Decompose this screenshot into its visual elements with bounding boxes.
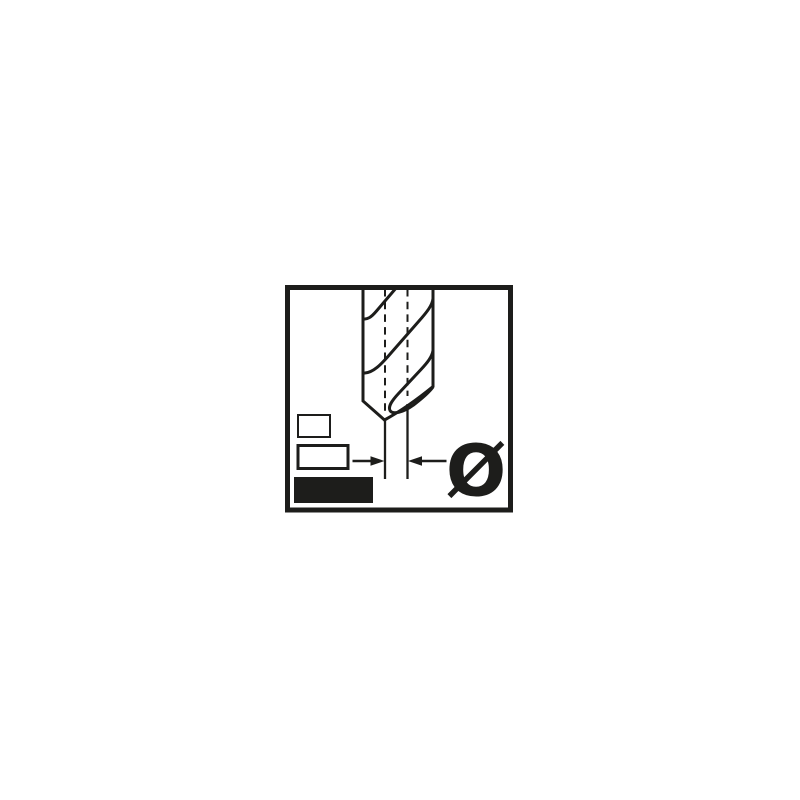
- dimension-arrow-left: [353, 456, 385, 465]
- diameter-symbol: Ø: [446, 430, 506, 513]
- size-box-large-filled: [294, 477, 373, 503]
- size-box-medium: [298, 446, 348, 469]
- dimension-arrow-right: [408, 456, 447, 465]
- arrowhead-left-pointing-icon: [408, 456, 422, 465]
- size-box-small: [298, 415, 330, 437]
- drill-bit-icon: [363, 288, 433, 421]
- drill-body-outline: [363, 288, 433, 420]
- arrowhead-right-pointing-icon: [371, 456, 385, 465]
- pictogram-canvas: Ø: [0, 0, 800, 800]
- drill-diameter-pictogram: Ø: [0, 0, 800, 800]
